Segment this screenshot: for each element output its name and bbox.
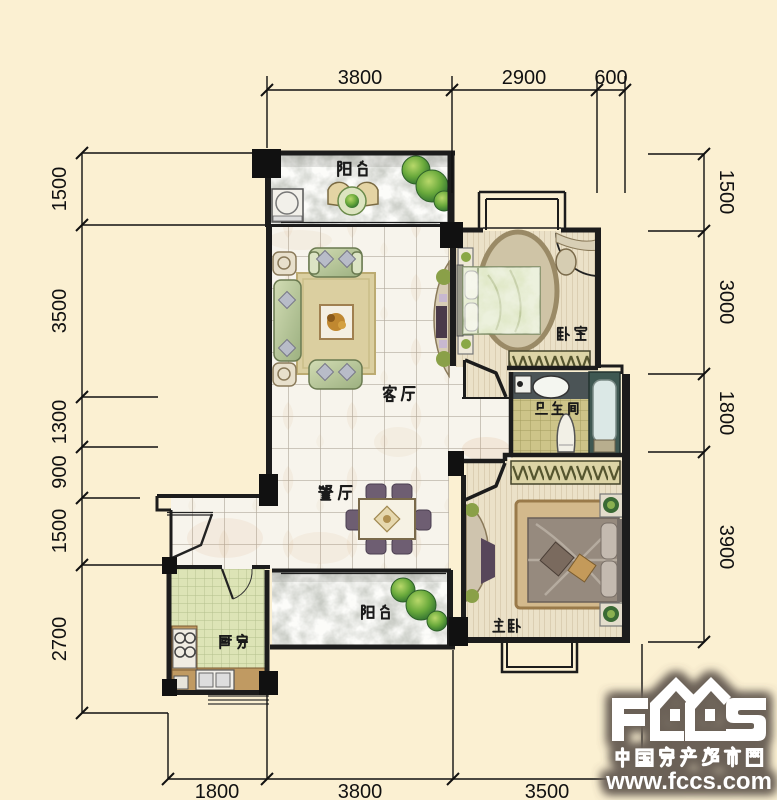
svg-text:3500: 3500	[525, 781, 570, 800]
svg-text:1800: 1800	[715, 391, 737, 436]
svg-text:3800: 3800	[338, 781, 383, 800]
svg-text:2900: 2900	[502, 67, 547, 89]
svg-text:1300: 1300	[49, 400, 71, 445]
svg-text:600: 600	[594, 67, 627, 89]
svg-text:1500: 1500	[49, 167, 71, 212]
svg-text:3900: 3900	[715, 525, 737, 570]
svg-text:2700: 2700	[49, 617, 71, 662]
svg-text:3800: 3800	[338, 67, 383, 89]
svg-text:3000: 3000	[715, 280, 737, 325]
svg-text:900: 900	[49, 455, 71, 488]
svg-text:1800: 1800	[195, 781, 240, 800]
svg-text:1500: 1500	[49, 509, 71, 554]
svg-text:1500: 1500	[715, 170, 737, 215]
svg-text:3500: 3500	[49, 289, 71, 334]
